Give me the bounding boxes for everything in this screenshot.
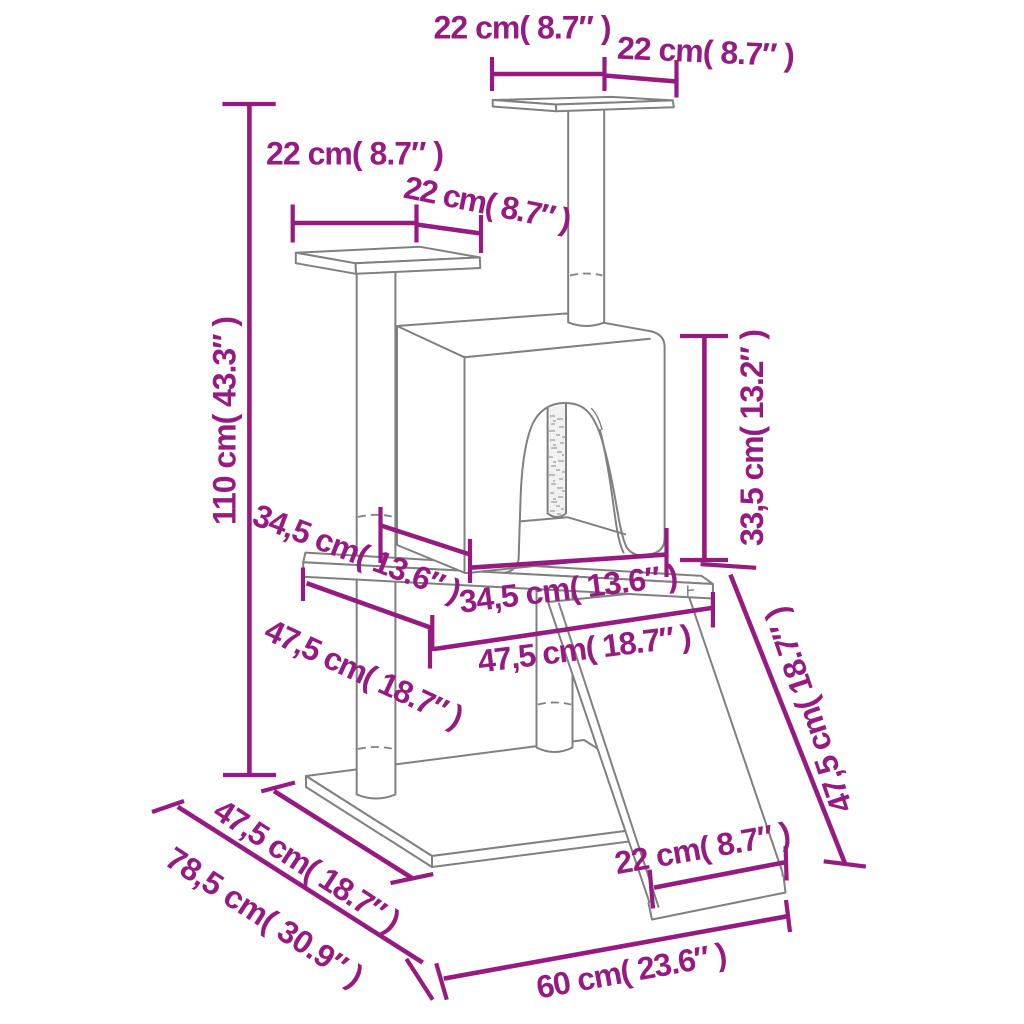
svg-text:22 cm( 8.7″ ): 22 cm( 8.7″ ) (266, 136, 444, 172)
svg-text:110 cm( 43.3″ ): 110 cm( 43.3″ ) (207, 316, 243, 525)
svg-text:22 cm( 8.7″ ): 22 cm( 8.7″ ) (434, 10, 612, 46)
svg-text:33,5 cm( 13.2″ ): 33,5 cm( 13.2″ ) (734, 329, 770, 546)
